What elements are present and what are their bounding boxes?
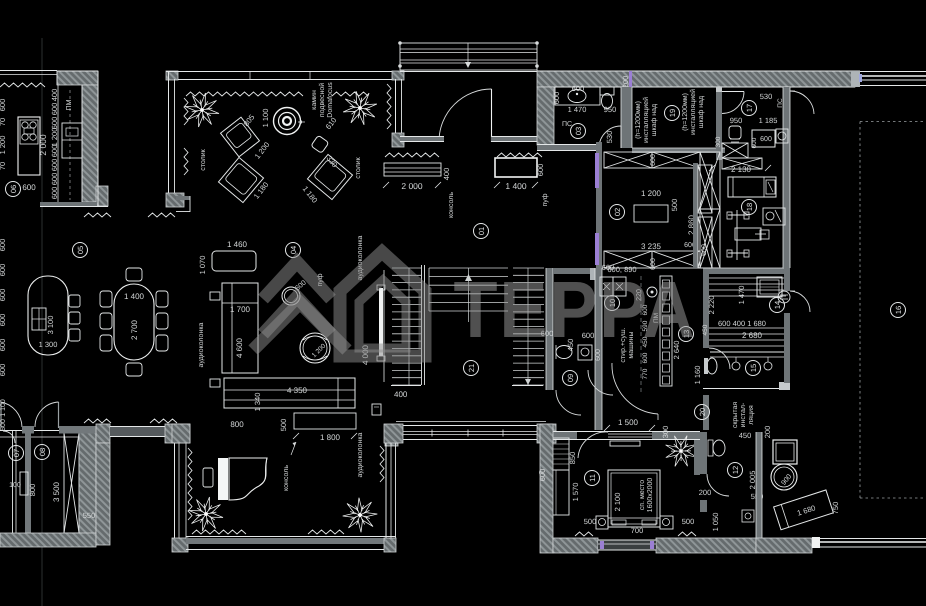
svg-text:ПС: ПС — [777, 98, 784, 108]
svg-text:200: 200 — [621, 76, 630, 89]
svg-text:950: 950 — [730, 116, 743, 125]
svg-text:400: 400 — [442, 168, 451, 181]
svg-text:1 470: 1 470 — [737, 286, 746, 305]
svg-text:11: 11 — [588, 474, 597, 482]
svg-text:16: 16 — [894, 306, 903, 314]
svg-text:20: 20 — [698, 408, 707, 416]
svg-text:3 235: 3 235 — [641, 242, 662, 251]
svg-text:1 200: 1 200 — [641, 189, 662, 198]
svg-text:15: 15 — [749, 364, 758, 372]
svg-text:ПС: ПС — [562, 121, 572, 128]
svg-text:1 700: 1 700 — [230, 305, 251, 314]
svg-text:300: 300 — [715, 136, 722, 147]
svg-text:600: 600 — [0, 419, 7, 431]
svg-text:600: 600 — [0, 239, 7, 252]
svg-text:400: 400 — [50, 89, 59, 102]
svg-text:100: 100 — [9, 482, 21, 489]
svg-text:2 000: 2 000 — [401, 181, 423, 191]
svg-text:02: 02 — [613, 208, 622, 216]
svg-text:пуф: пуф — [541, 193, 549, 206]
svg-text:750: 750 — [831, 502, 840, 515]
svg-text:600: 600 — [572, 84, 585, 93]
svg-text:камин: камин — [311, 90, 318, 110]
svg-text:1 200: 1 200 — [50, 128, 59, 147]
svg-text:4 350: 4 350 — [287, 386, 308, 395]
svg-text:1 340: 1 340 — [253, 393, 262, 412]
svg-text:600: 600 — [0, 314, 7, 327]
svg-text:2 700: 2 700 — [130, 319, 139, 340]
svg-text:530: 530 — [605, 131, 614, 144]
svg-text:1 400: 1 400 — [505, 181, 527, 191]
svg-text:инсталляцией: инсталляцией — [689, 89, 697, 135]
svg-text:21: 21 — [467, 364, 476, 372]
svg-text:18: 18 — [745, 203, 754, 211]
svg-text:1 160: 1 160 — [693, 366, 702, 385]
svg-text:600: 600 — [22, 183, 36, 192]
svg-text:600: 600 — [552, 92, 561, 105]
svg-text:05: 05 — [76, 246, 85, 254]
svg-text:600: 600 — [0, 264, 7, 277]
svg-text:12: 12 — [731, 466, 740, 474]
svg-text:2 000: 2 000 — [38, 134, 48, 156]
svg-text:300: 300 — [661, 426, 670, 439]
svg-text:600: 600 — [536, 164, 545, 177]
svg-text:столик: столик — [355, 156, 362, 178]
svg-text:600: 600 — [538, 469, 547, 482]
svg-text:600: 600 — [701, 244, 708, 256]
svg-text:подвесной: подвесной — [318, 83, 326, 117]
svg-text:4 600: 4 600 — [235, 337, 244, 358]
svg-text:1 200: 1 200 — [0, 136, 7, 155]
svg-text:1 050: 1 050 — [711, 513, 720, 532]
svg-text:01: 01 — [477, 227, 486, 235]
svg-text:600: 600 — [50, 159, 59, 172]
svg-text:ПМ: ПМ — [66, 99, 73, 110]
svg-text:аудиоколонка: аудиоколонка — [357, 432, 364, 477]
svg-text:600: 600 — [50, 187, 59, 200]
svg-text:200: 200 — [699, 488, 712, 497]
svg-text:600 400 1 680: 600 400 1 680 — [718, 319, 766, 328]
svg-text:600: 600 — [0, 99, 7, 112]
svg-text:600: 600 — [751, 137, 758, 148]
svg-text:600: 600 — [0, 339, 7, 352]
svg-text:(h=1200мм): (h=1200мм) — [681, 93, 689, 131]
svg-text:500: 500 — [584, 517, 597, 526]
svg-text:3 100: 3 100 — [46, 316, 55, 335]
svg-text:500: 500 — [682, 517, 695, 526]
svg-text:800: 800 — [230, 420, 244, 429]
svg-text:500: 500 — [279, 419, 288, 432]
svg-text:800: 800 — [28, 484, 37, 497]
svg-text:столик: столик — [200, 148, 207, 170]
svg-text:1 800: 1 800 — [320, 433, 341, 442]
svg-text:17: 17 — [745, 104, 754, 112]
svg-text:2 130: 2 130 — [731, 165, 752, 174]
svg-text:2 680: 2 680 — [742, 331, 763, 340]
svg-text:950: 950 — [604, 105, 617, 114]
svg-text:инсталляцией: инсталляцией — [642, 97, 650, 143]
svg-text:600: 600 — [50, 103, 59, 116]
svg-text:600: 600 — [50, 117, 59, 130]
svg-text:450: 450 — [739, 431, 752, 440]
svg-text:инстал-: инстал- — [740, 402, 747, 427]
svg-text:3 500: 3 500 — [52, 481, 61, 502]
svg-text:Domafocus: Domafocus — [326, 82, 334, 118]
svg-text:70: 70 — [0, 162, 7, 170]
svg-text:400: 400 — [394, 390, 408, 399]
svg-text:1 185: 1 185 — [759, 116, 778, 125]
svg-text:200: 200 — [763, 426, 772, 439]
svg-text:06: 06 — [9, 185, 18, 193]
svg-text:сп. место: сп. место — [639, 480, 646, 511]
svg-text:2 100: 2 100 — [613, 493, 622, 512]
svg-text:2 220: 2 220 — [707, 296, 716, 315]
svg-text:09: 09 — [566, 374, 575, 382]
svg-text:600: 600 — [50, 173, 59, 186]
svg-text:скрытая: скрытая — [732, 402, 739, 429]
svg-text:ТЕРРА: ТЕРРА — [454, 265, 697, 354]
svg-text:1 100: 1 100 — [261, 109, 270, 128]
svg-text:850: 850 — [568, 452, 577, 465]
svg-text:03: 03 — [574, 127, 583, 135]
svg-text:1 470: 1 470 — [568, 105, 587, 114]
svg-text:450: 450 — [702, 324, 709, 335]
svg-text:1 460: 1 460 — [227, 240, 248, 249]
svg-text:530: 530 — [760, 92, 773, 101]
svg-text:600: 600 — [650, 154, 657, 166]
svg-text:1 300: 1 300 — [39, 340, 58, 349]
svg-text:аудиоколонка: аудиоколонка — [198, 322, 205, 367]
svg-text:(h=1200мм): (h=1200мм) — [634, 101, 642, 139]
svg-text:770: 770 — [642, 368, 649, 379]
svg-text:1 500: 1 500 — [618, 418, 639, 427]
svg-text:1 100: 1 100 — [0, 399, 7, 417]
svg-text:500: 500 — [670, 199, 679, 212]
svg-text:1 570: 1 570 — [571, 483, 580, 502]
svg-text:08: 08 — [38, 448, 47, 456]
svg-text:07: 07 — [12, 449, 21, 457]
svg-text:консоль: консоль — [283, 465, 290, 491]
svg-text:700: 700 — [631, 526, 644, 535]
svg-text:1600x2000: 1600x2000 — [647, 478, 654, 513]
svg-text:1 070: 1 070 — [198, 256, 207, 275]
svg-text:70: 70 — [0, 118, 7, 126]
svg-text:600: 600 — [0, 364, 7, 377]
svg-text:шкаф над: шкаф над — [650, 104, 658, 136]
svg-text:шкаф над: шкаф над — [697, 96, 705, 128]
svg-text:ляция: ляция — [748, 405, 755, 425]
svg-text:600: 600 — [50, 145, 59, 158]
svg-text:550: 550 — [83, 511, 96, 520]
svg-text:19: 19 — [668, 109, 677, 117]
svg-text:консоль: консоль — [448, 192, 455, 218]
svg-text:1 400: 1 400 — [124, 292, 145, 301]
svg-text:600: 600 — [0, 289, 7, 302]
svg-text:600: 600 — [760, 136, 772, 143]
